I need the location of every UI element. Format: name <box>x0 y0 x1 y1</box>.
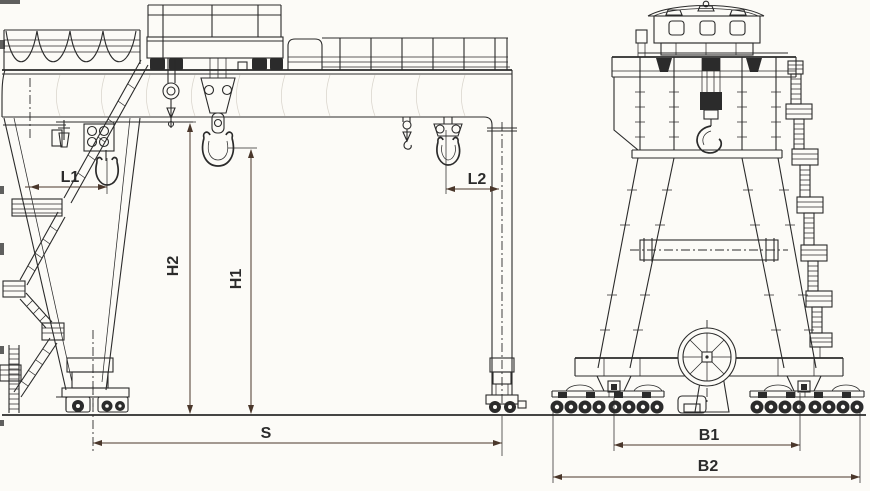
dimension-label-h2: H2 <box>165 256 182 277</box>
dimension-label-b2: B2 <box>698 458 719 475</box>
bogie-right-wheels <box>751 401 864 414</box>
aux-hook-block <box>434 117 462 165</box>
center-buffer <box>678 396 706 413</box>
bogie-left <box>551 376 665 414</box>
end-platform-cab <box>288 39 322 70</box>
aux-hoist <box>403 117 411 149</box>
end-view <box>551 1 865 413</box>
machinery-cab <box>636 1 764 57</box>
dimension-label-l2: L2 <box>468 171 487 188</box>
dimension-b2: B2 <box>553 405 860 483</box>
bogie-left-wheels <box>551 401 664 414</box>
end-hook-block <box>697 58 722 153</box>
dimension-label-h1: H1 <box>228 269 245 290</box>
bridge-girder <box>2 70 512 125</box>
dimension-h1: H1 <box>228 148 257 414</box>
cross-member <box>630 238 788 262</box>
dimension-label-span: S <box>261 425 272 442</box>
dimension-span: S <box>93 386 502 456</box>
cable-reel <box>678 320 736 412</box>
side-view <box>0 5 526 413</box>
gantry-crane-drawing: L1 L2 H2 H1 S B1 <box>0 0 870 491</box>
dimension-label-b1: B1 <box>699 427 720 444</box>
trolley <box>147 5 283 70</box>
walkway-railing <box>322 38 510 70</box>
dimension-h2: H2 <box>130 122 196 414</box>
dimension-label-l1: L1 <box>61 169 80 186</box>
access-ladder <box>9 345 19 413</box>
dimension-l1: L1 <box>25 158 107 194</box>
bogie-right <box>750 376 864 414</box>
cable-festoon <box>4 30 140 70</box>
drawing-canvas: L1 L2 H2 H1 S B1 <box>0 0 870 491</box>
right-leg <box>486 117 526 413</box>
end-ladder <box>786 61 832 358</box>
left-leg <box>3 78 140 412</box>
